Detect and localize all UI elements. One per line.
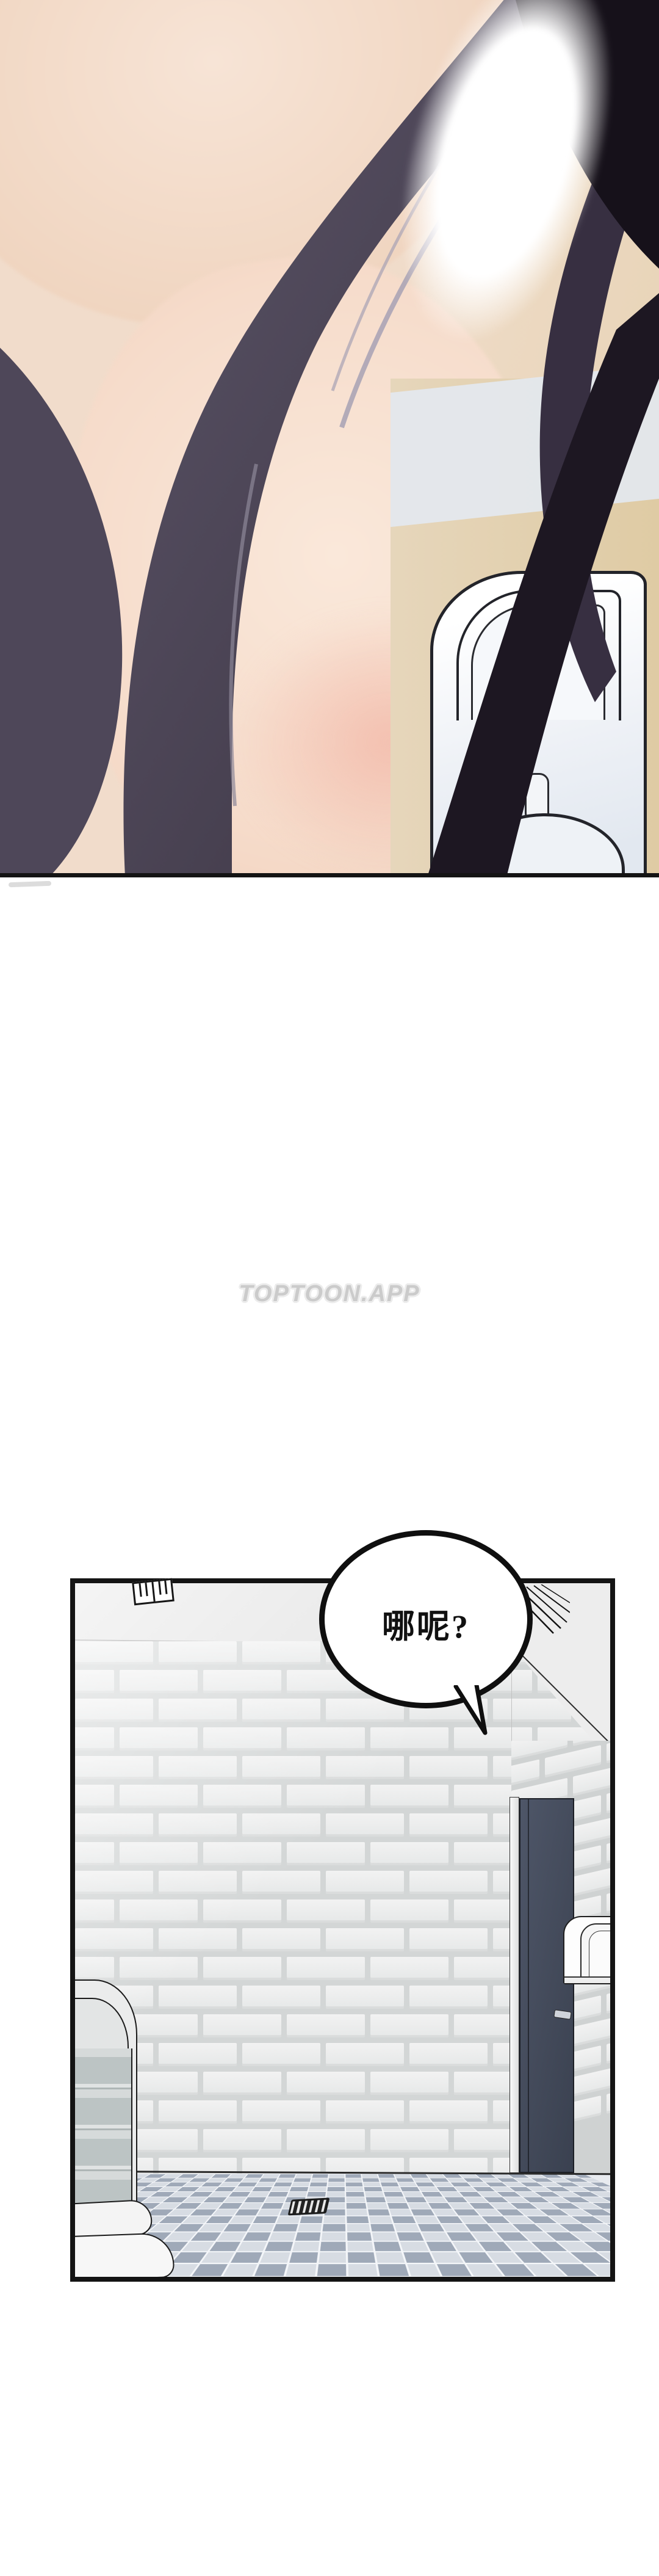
dispenser-lip xyxy=(564,1976,610,1983)
urinal-bowl-lower xyxy=(75,2232,175,2277)
vent-bar xyxy=(164,1581,167,1595)
vent-divider xyxy=(151,1582,155,1602)
towel-dispenser xyxy=(563,1916,610,1984)
vent-window xyxy=(132,1578,175,1606)
door xyxy=(519,1798,574,2173)
vent-bar xyxy=(158,1581,161,1595)
door-frame xyxy=(510,1797,519,2173)
panel-interior xyxy=(75,1583,610,2277)
stray-mark xyxy=(9,881,51,887)
vent-bar xyxy=(145,1583,148,1597)
urinal-bowl-upper xyxy=(75,2199,153,2239)
floor-drain xyxy=(288,2197,330,2215)
comic-panel xyxy=(70,1578,615,2282)
watermark-text: TOPTOON.APP xyxy=(0,1281,659,1307)
webtoon-page: { "page": { "background": "#ffffff", "wi… xyxy=(0,0,659,2576)
speech-bubble-text: 哪呢? xyxy=(382,1599,470,1647)
artwork-panel xyxy=(0,0,659,877)
speech-bubble: 哪呢? xyxy=(319,1530,533,1708)
dispenser-arch-inner xyxy=(589,1931,610,1979)
speech-bubble-tail xyxy=(450,1685,499,1737)
artwork-bottom-border xyxy=(0,873,659,877)
shadow-band-right xyxy=(427,293,659,877)
hair-left xyxy=(0,342,122,877)
door-panel-line xyxy=(528,1799,529,2172)
vent-bar xyxy=(139,1583,142,1597)
